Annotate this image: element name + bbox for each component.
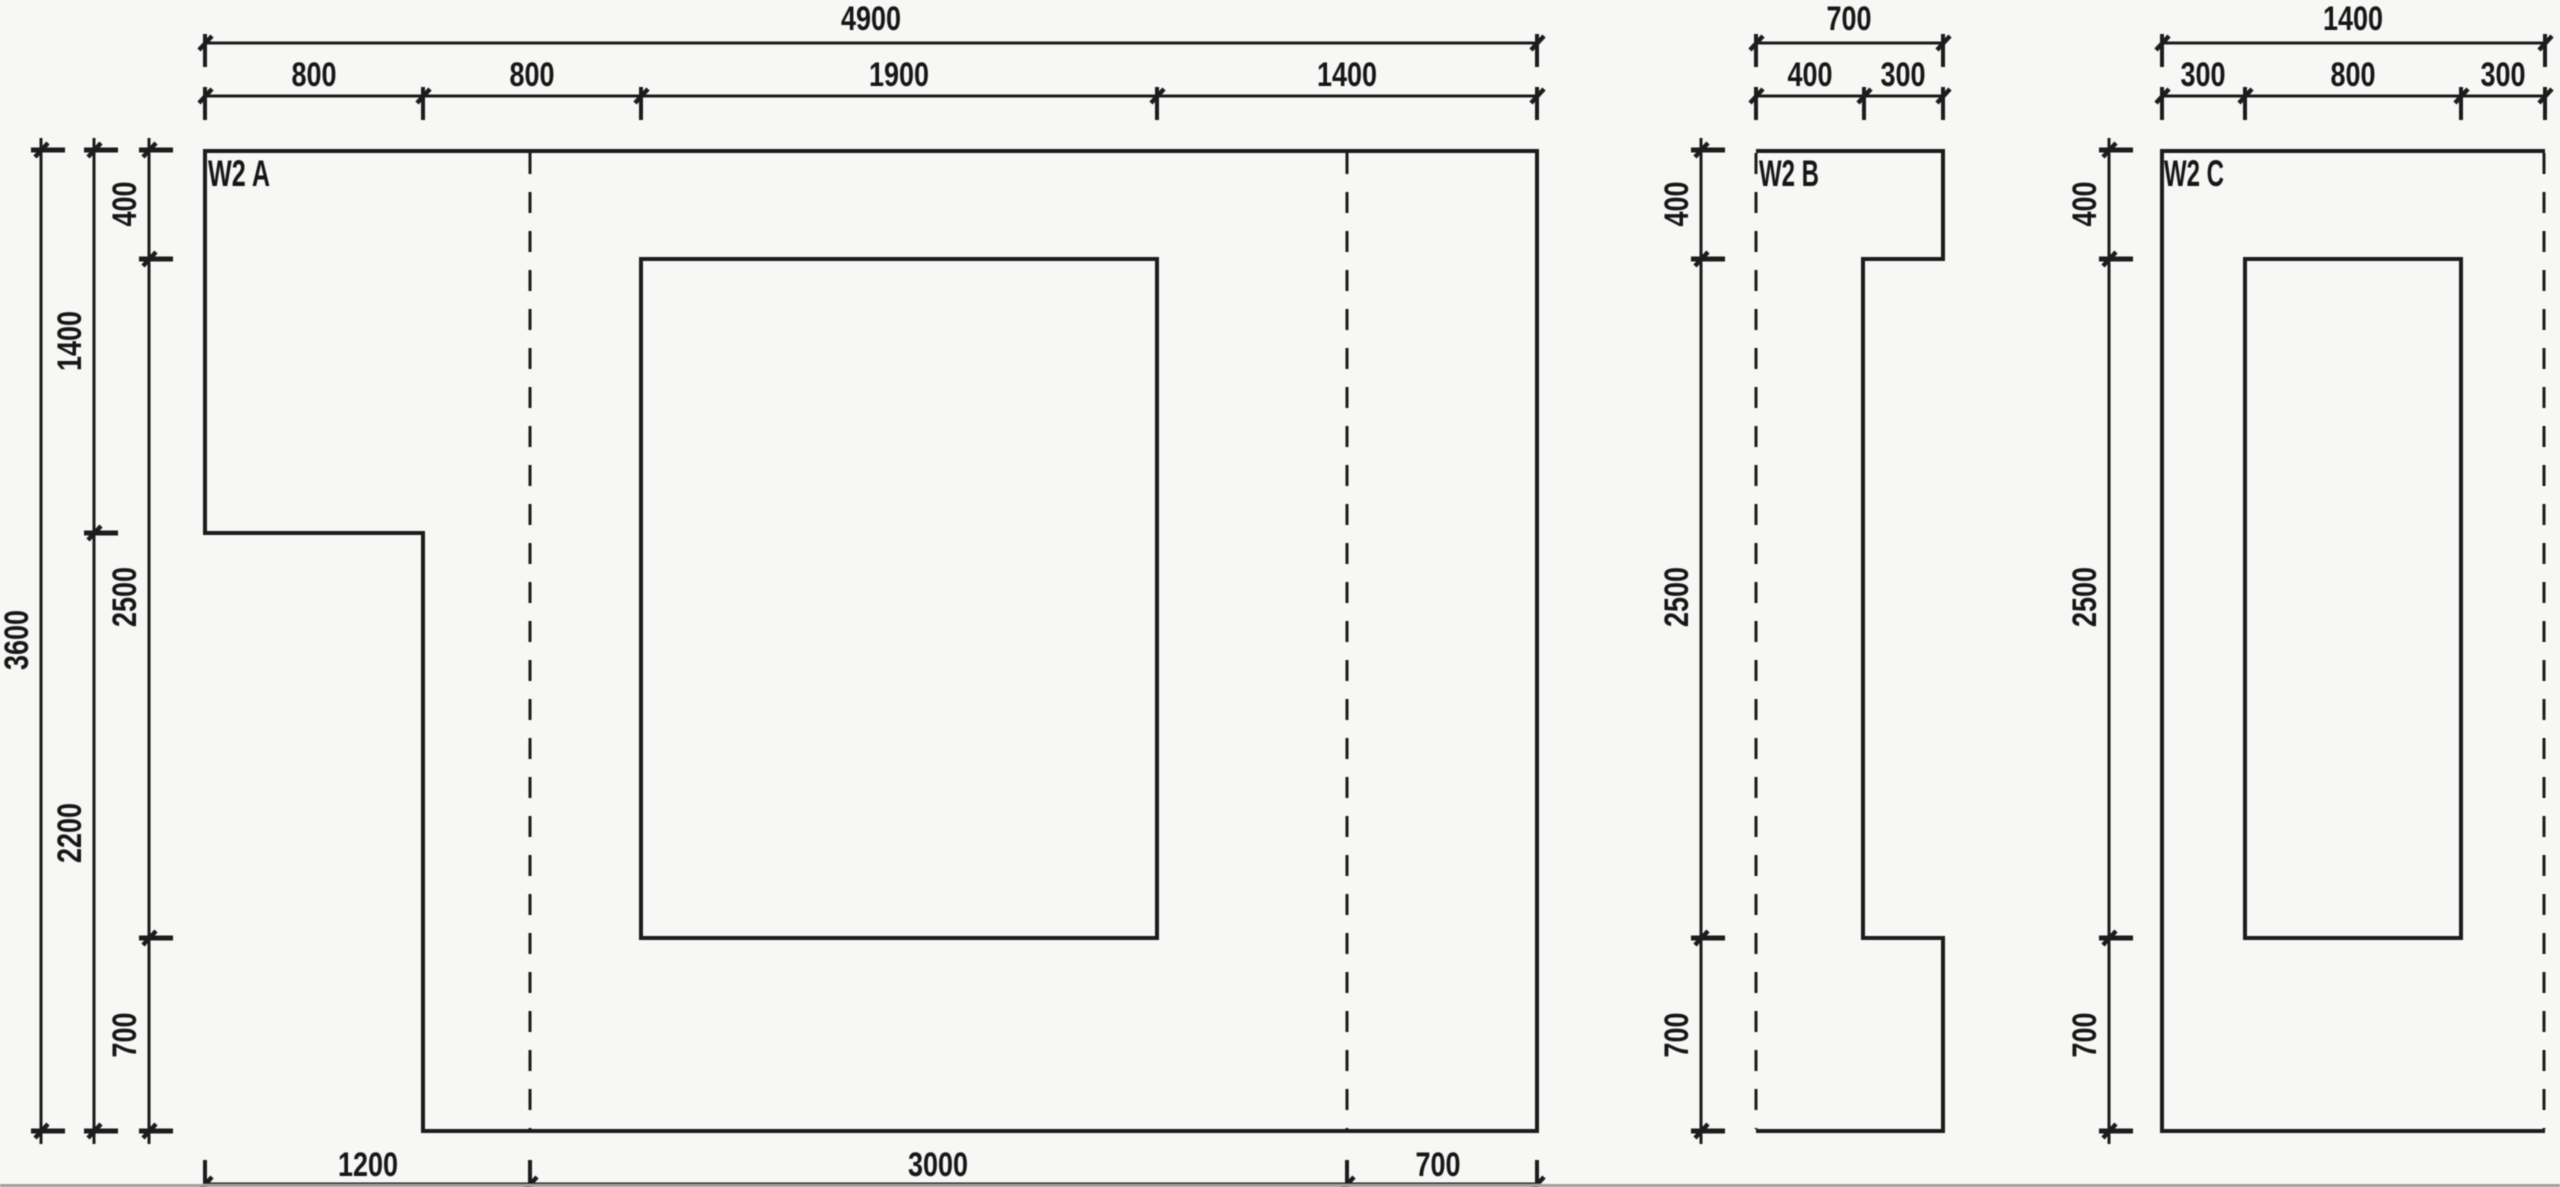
svg-text:800: 800	[510, 56, 555, 94]
svg-text:1400: 1400	[2323, 0, 2383, 38]
svg-text:1400: 1400	[1317, 56, 1377, 94]
svg-text:2200: 2200	[51, 803, 89, 863]
svg-text:1200: 1200	[338, 1146, 398, 1184]
svg-text:300: 300	[2481, 56, 2526, 94]
svg-text:2500: 2500	[1658, 567, 1696, 627]
svg-text:W2 A: W2 A	[208, 153, 270, 194]
svg-text:3600: 3600	[0, 610, 36, 670]
svg-text:700: 700	[1827, 0, 1872, 38]
svg-text:2500: 2500	[106, 567, 144, 627]
svg-text:400: 400	[2066, 182, 2104, 227]
svg-text:800: 800	[292, 56, 337, 94]
svg-text:W2 B: W2 B	[1759, 153, 1819, 194]
svg-text:400: 400	[1788, 56, 1833, 94]
svg-text:300: 300	[1881, 56, 1926, 94]
svg-text:4900: 4900	[841, 0, 901, 38]
svg-text:W2 C: W2 C	[2164, 153, 2224, 194]
svg-text:1400: 1400	[51, 311, 89, 371]
svg-text:700: 700	[1416, 1146, 1461, 1184]
svg-text:700: 700	[1658, 1013, 1696, 1058]
svg-text:2500: 2500	[2066, 567, 2104, 627]
svg-text:800: 800	[2331, 56, 2376, 94]
svg-text:700: 700	[106, 1013, 144, 1058]
svg-text:300: 300	[2181, 56, 2226, 94]
svg-text:3000: 3000	[908, 1146, 968, 1184]
svg-text:400: 400	[106, 182, 144, 227]
svg-text:700: 700	[2066, 1013, 2104, 1058]
svg-text:400: 400	[1658, 182, 1696, 227]
svg-text:1900: 1900	[869, 56, 929, 94]
